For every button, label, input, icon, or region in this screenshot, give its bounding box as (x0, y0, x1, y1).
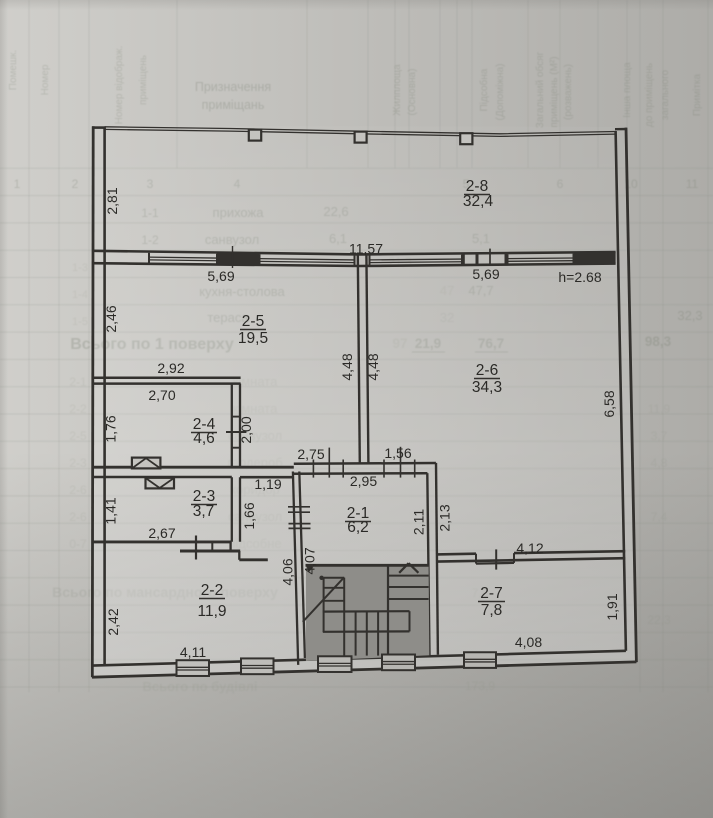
svg-text:4,06: 4,06 (280, 558, 296, 585)
svg-text:1,66: 1,66 (241, 502, 257, 529)
svg-text:5,69: 5,69 (207, 268, 234, 284)
svg-text:3,7: 3,7 (193, 503, 215, 520)
svg-text:2-5: 2-5 (242, 313, 264, 330)
svg-text:2,92: 2,92 (157, 360, 184, 376)
svg-text:2-7: 2-7 (480, 585, 502, 602)
svg-text:h=2.68: h=2.68 (558, 269, 601, 285)
svg-text:4,12: 4,12 (516, 540, 543, 556)
svg-text:1,56: 1,56 (384, 445, 411, 461)
svg-text:2,67: 2,67 (148, 525, 175, 541)
svg-text:11,57: 11,57 (349, 240, 383, 256)
svg-text:2,13: 2,13 (437, 504, 453, 531)
svg-text:1,41: 1,41 (103, 497, 119, 524)
svg-text:6,2: 6,2 (347, 519, 369, 536)
svg-text:2,70: 2,70 (148, 387, 175, 403)
svg-text:34,3: 34,3 (472, 379, 502, 396)
svg-text:2,95: 2,95 (350, 473, 377, 489)
svg-text:1,91: 1,91 (604, 593, 620, 620)
svg-text:11,9: 11,9 (197, 603, 226, 620)
svg-text:7,8: 7,8 (481, 602, 503, 619)
svg-text:2,46: 2,46 (103, 305, 119, 332)
svg-text:19,5: 19,5 (238, 330, 268, 347)
svg-text:1,76: 1,76 (103, 415, 119, 442)
svg-text:2,42: 2,42 (105, 608, 121, 635)
svg-text:4,08: 4,08 (515, 634, 542, 650)
svg-text:1,19: 1,19 (254, 476, 281, 492)
svg-text:4,11: 4,11 (180, 644, 206, 660)
svg-text:6,58: 6,58 (601, 390, 617, 417)
svg-text:2,11: 2,11 (411, 509, 427, 535)
svg-text:2-6: 2-6 (476, 362, 498, 379)
svg-text:5,69: 5,69 (472, 266, 499, 282)
svg-text:2,75: 2,75 (297, 446, 324, 462)
svg-text:2,81: 2,81 (104, 187, 120, 214)
svg-text:4,48: 4,48 (365, 353, 381, 380)
svg-text:2,00: 2,00 (238, 416, 254, 443)
svg-text:2-2: 2-2 (201, 582, 223, 599)
svg-text:4,6: 4,6 (193, 430, 215, 447)
svg-text:4,48: 4,48 (339, 353, 355, 380)
svg-text:4,07: 4,07 (302, 547, 318, 574)
svg-text:32,4: 32,4 (463, 193, 494, 210)
